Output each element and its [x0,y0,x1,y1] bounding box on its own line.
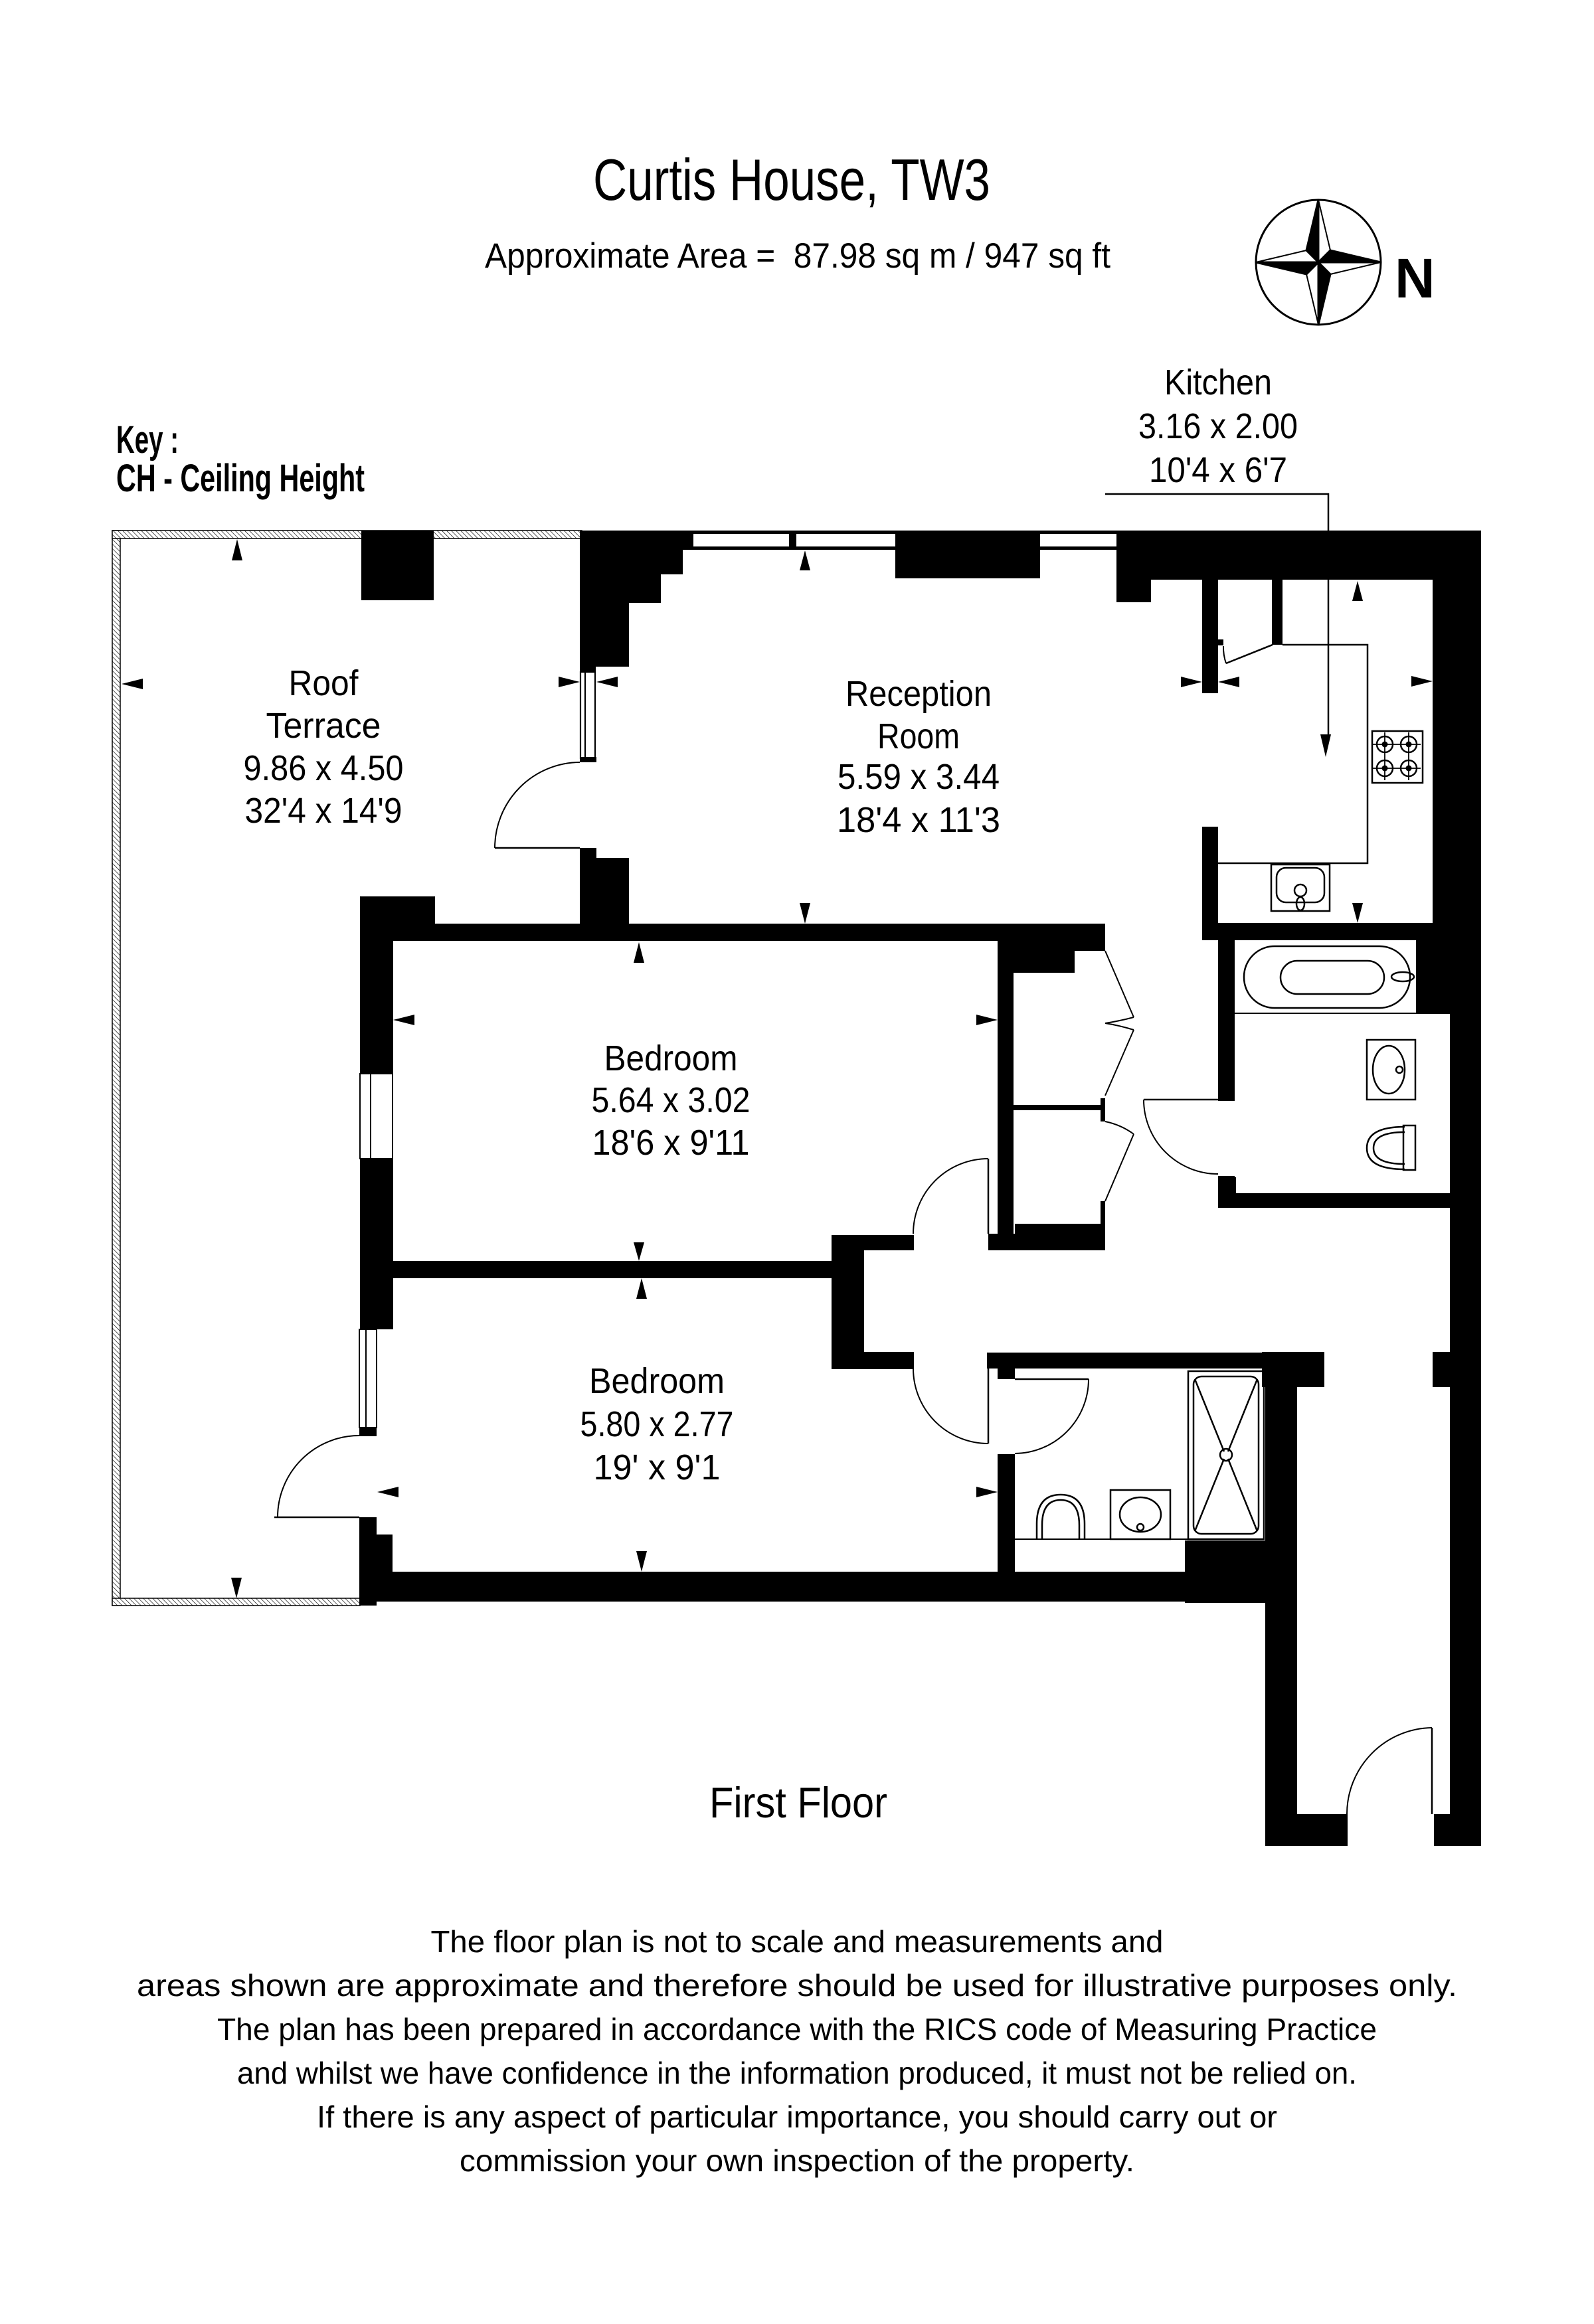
svg-text:N: N [1395,247,1435,309]
svg-text:First Floor: First Floor [709,1778,887,1827]
svg-text:Bedroom: Bedroom [604,1038,738,1078]
svg-text:Reception: Reception [845,674,992,714]
svg-text:10'4 x 6'7: 10'4 x 6'7 [1149,450,1287,490]
svg-text:CH - Ceiling Height: CH - Ceiling Height [116,457,365,500]
svg-text:32'4 x 14'9: 32'4 x 14'9 [245,791,402,831]
svg-text:and whilst we have confidence: and whilst we have confidence in the inf… [237,2056,1357,2090]
svg-text:Bedroom: Bedroom [589,1361,725,1401]
svg-text:9.86 x 4.50: 9.86 x 4.50 [244,748,404,788]
svg-text:Curtis House, TW3: Curtis House, TW3 [593,147,990,212]
svg-text:Roof: Roof [289,663,359,703]
svg-text:5.80 x 2.77: 5.80 x 2.77 [580,1404,734,1444]
svg-text:18'6 x 9'11: 18'6 x 9'11 [592,1123,750,1163]
svg-text:Approximate Area = 87.98 sq m: Approximate Area = 87.98 sq m / 947 sq f… [485,236,1110,276]
svg-text:Room: Room [877,716,960,756]
svg-text:5.59 x 3.44: 5.59 x 3.44 [838,757,1000,797]
svg-text:Kitchen: Kitchen [1164,363,1272,402]
svg-text:If there is any aspect of part: If there is any aspect of particular imp… [317,2100,1277,2134]
svg-text:Terrace: Terrace [266,706,381,746]
svg-text:18'4 x 11'3: 18'4 x 11'3 [837,800,1000,840]
svg-text:The floor plan is not to scale: The floor plan is not to scale and measu… [431,1924,1164,1959]
svg-text:The plan has been prepared in: The plan has been prepared in accordance… [217,2012,1377,2046]
svg-text:5.64 x 3.02: 5.64 x 3.02 [592,1080,751,1120]
svg-text:19' x 9'1: 19' x 9'1 [594,1448,721,1487]
svg-text:3.16 x 2.00: 3.16 x 2.00 [1138,406,1298,446]
svg-text:areas shown are approximate an: areas shown are approximate and therefor… [137,1968,1457,2003]
svg-text:commission your own inspection: commission your own inspection of the pr… [460,2143,1134,2178]
svg-text:Key :: Key : [116,418,179,461]
